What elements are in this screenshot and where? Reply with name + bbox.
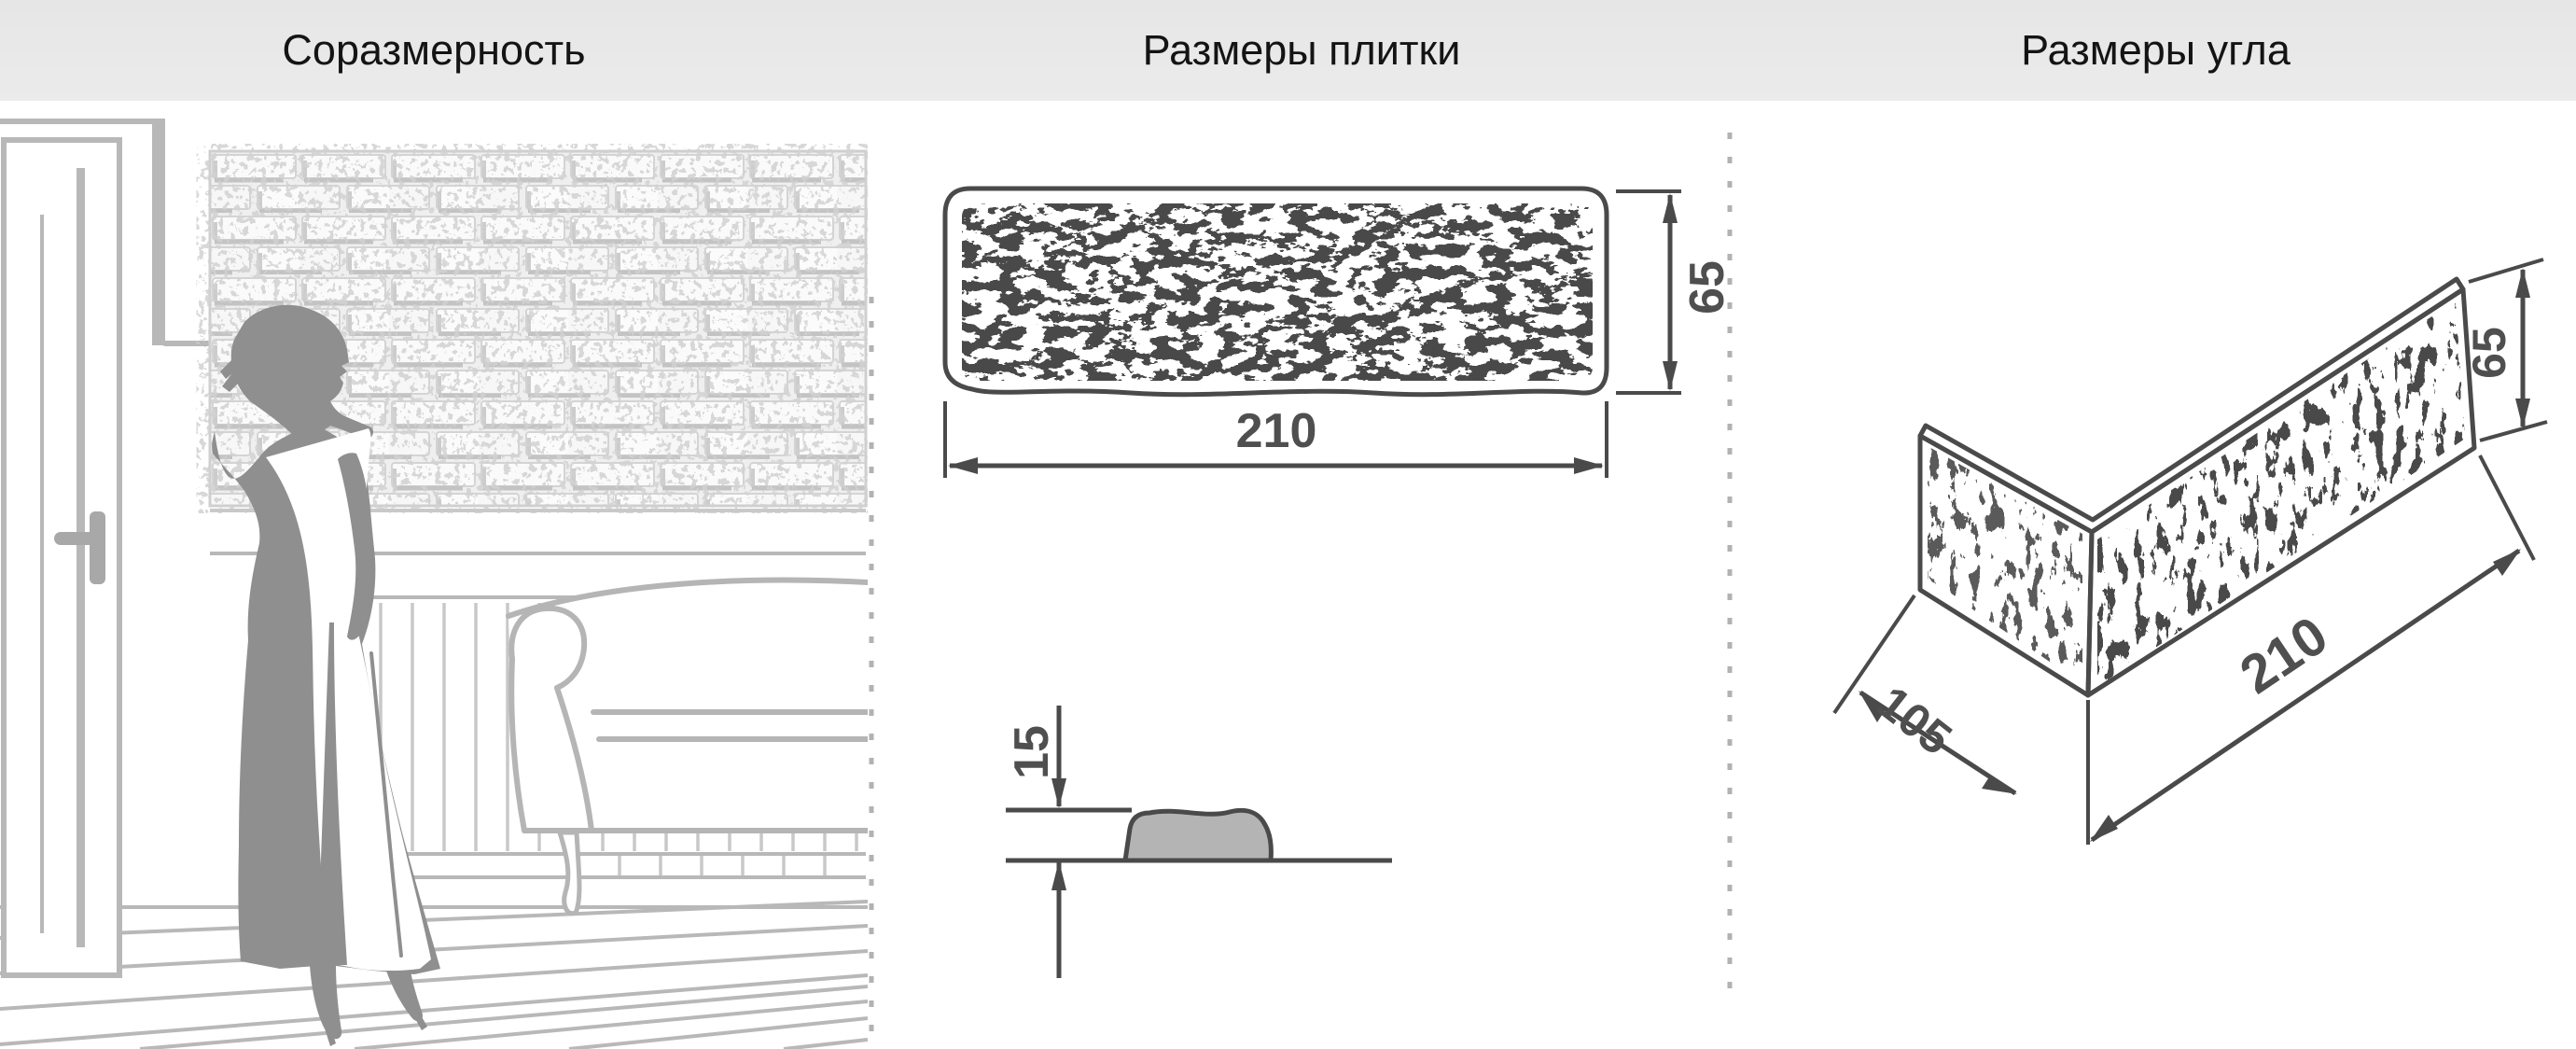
tile-height-label: 65 [1680, 260, 1734, 315]
sofa-leg [560, 832, 579, 914]
tile-front-view: 65 210 [945, 189, 1734, 478]
tile-height-dimension: 65 [1616, 191, 1734, 393]
corner-piece [1920, 279, 2482, 700]
door-groove [77, 168, 85, 947]
corner-height-label: 65 [2463, 327, 2515, 379]
corner-height-dimension: 65 [2463, 259, 2547, 441]
tile-width-label: 210 [1236, 404, 1317, 458]
corner-width-label: 210 [2230, 605, 2339, 706]
door [4, 140, 119, 975]
boots [310, 965, 427, 1046]
tile-thickness-dimension: 15 [1005, 706, 1066, 978]
tile-thickness-label: 15 [1005, 725, 1059, 779]
infographic: Соразмерность Размеры плитки Размеры угл… [0, 0, 2576, 1049]
plank-floor [0, 902, 868, 1049]
tile-profile-shape [1125, 810, 1271, 860]
tile-front-texture [962, 203, 1593, 381]
tile-dimensions-drawing: 65 210 15 [868, 0, 1735, 1049]
tile-profile-view: 15 [1005, 706, 1392, 978]
corner-dimensions-drawing: 105 210 65 [1735, 0, 2576, 1049]
sofa [508, 580, 868, 914]
proportionality-scene [0, 0, 868, 1049]
tile-width-dimension: 210 [945, 401, 1607, 478]
